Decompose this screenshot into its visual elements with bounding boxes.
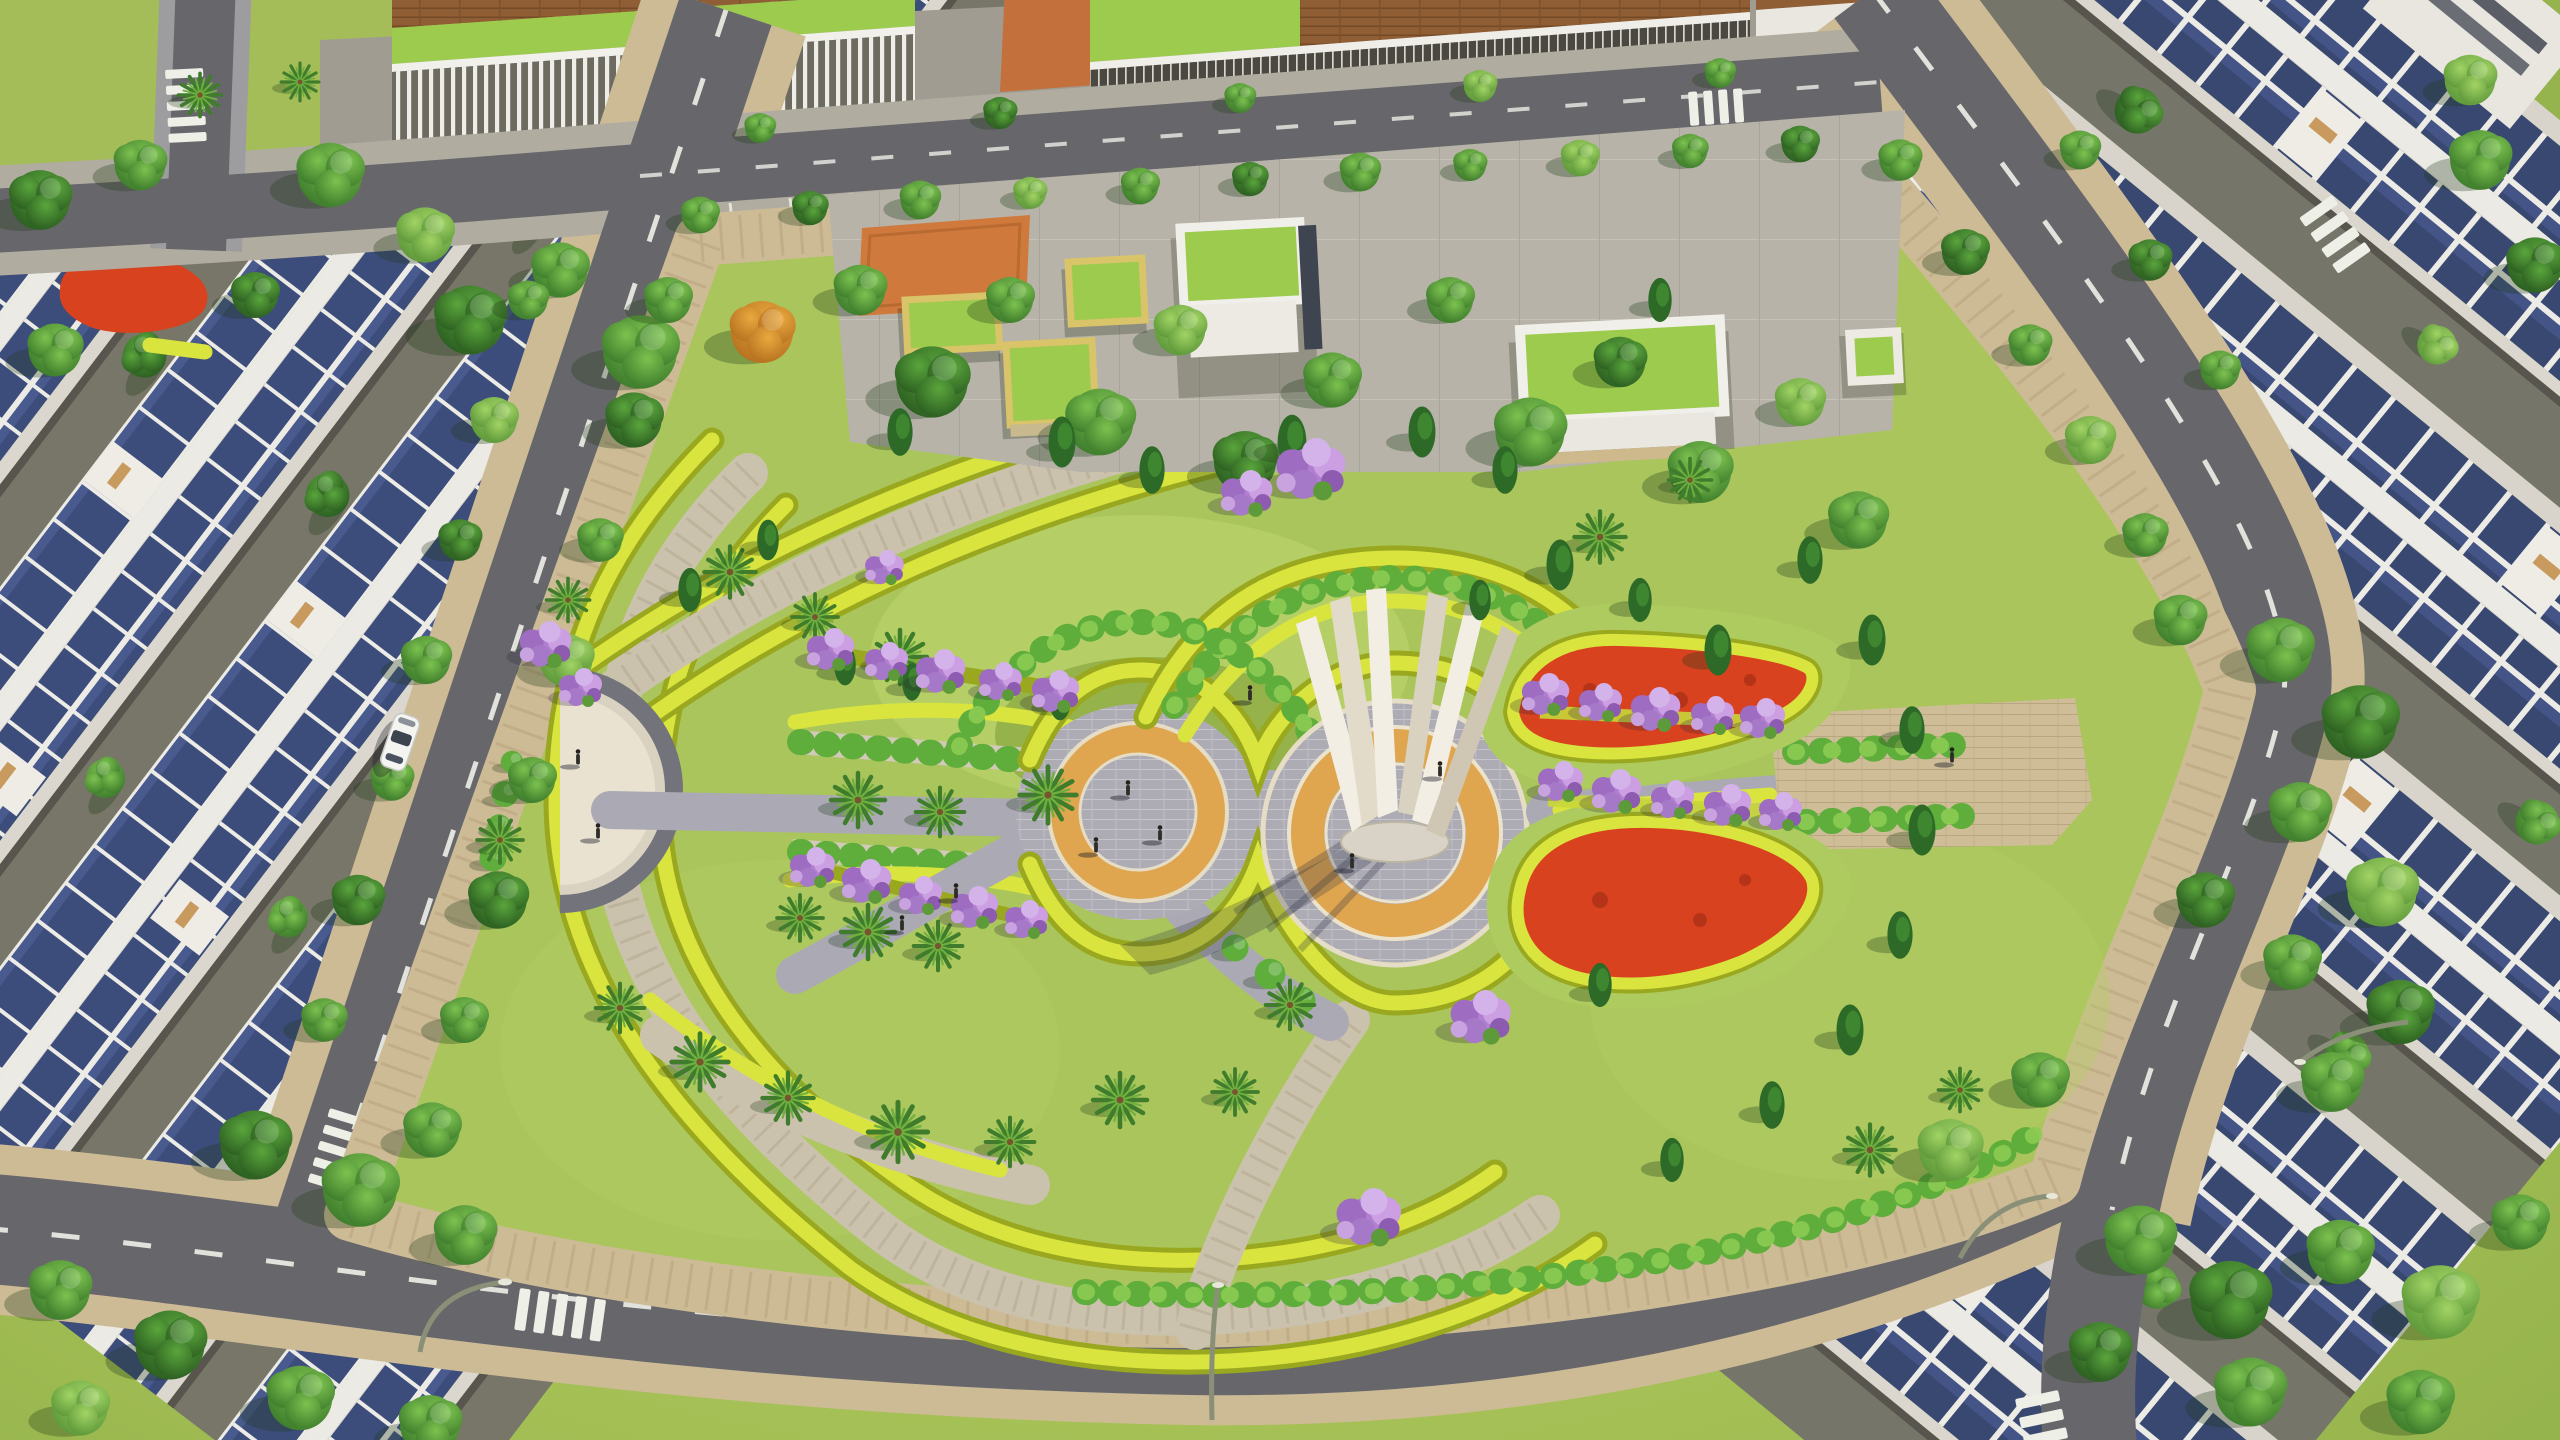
green-roof-pavilion	[1061, 258, 1147, 337]
masterplan-park-scene	[0, 0, 2560, 1440]
aerial-render-canvas	[0, 0, 2560, 1440]
green-roof-pavilion-small	[1839, 327, 1906, 398]
